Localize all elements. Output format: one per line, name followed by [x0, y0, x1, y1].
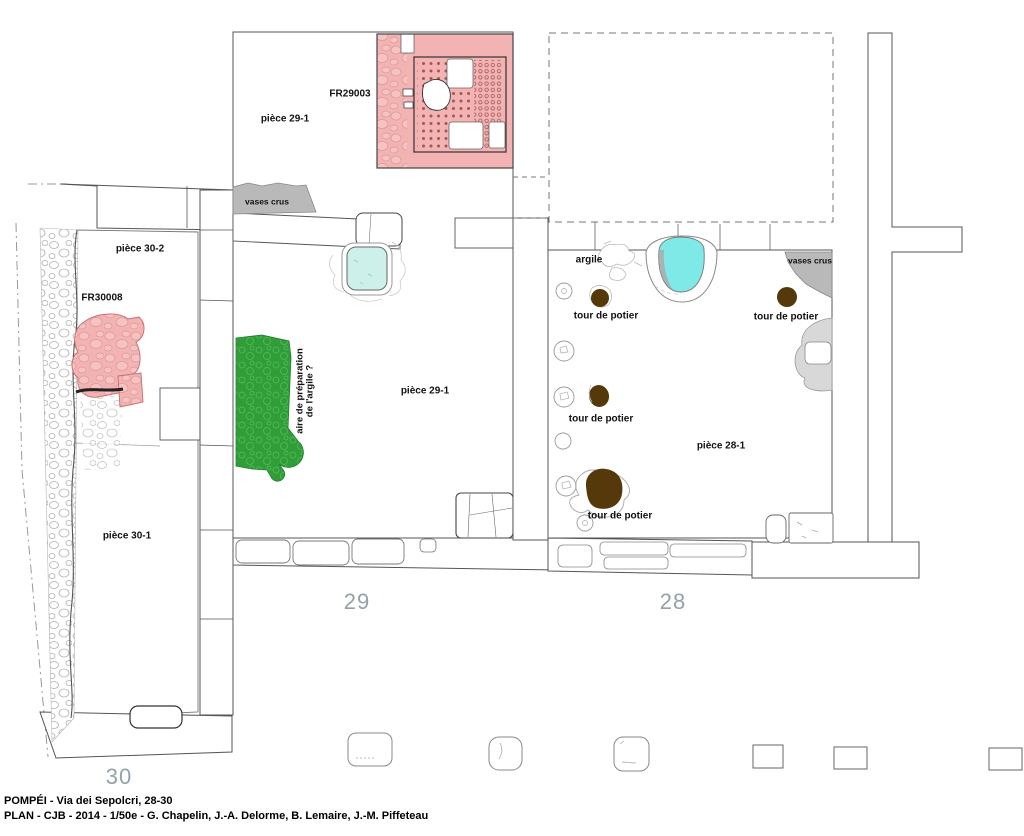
street-number-29: 29	[344, 589, 370, 615]
label-clay-area-line2: de l'argile ?	[306, 348, 316, 434]
street-slab	[834, 747, 867, 769]
label-piece-28-1: pièce 28-1	[697, 441, 745, 452]
street-stone	[348, 733, 392, 766]
street-stones	[348, 733, 1022, 771]
pier-stone	[456, 493, 513, 538]
street-slab	[753, 745, 783, 768]
threshold-stone	[356, 213, 402, 246]
label-piece-30-1: pièce 30-1	[103, 531, 151, 542]
street-stone	[489, 737, 522, 770]
label-clay-area: aire de préparation de l'argile ?	[296, 348, 317, 434]
label-fr29003: FR29003	[329, 89, 370, 100]
bottom-right-wall	[752, 542, 919, 578]
label-tour-de-potier-4: tour de potier	[588, 511, 652, 522]
footer-title-line1: POMPÉI - Via dei Sepolcri, 28-30	[4, 795, 173, 807]
far-right-wall	[868, 33, 962, 542]
footer-title-line2: PLAN - CJB - 2014 - 1/50e - G. Chapelin,…	[4, 810, 428, 822]
pompeii-plan-page: FR29003 pièce 29-1 vases crus pièce 30-2…	[0, 0, 1024, 836]
potter-wheel-4	[586, 469, 622, 509]
street-number-28: 28	[660, 589, 686, 615]
street-stone	[614, 737, 649, 771]
potter-wheel-1	[591, 289, 609, 307]
wall-band-30-29	[200, 190, 233, 715]
label-vases-crus-28: vases crus	[788, 256, 832, 265]
room-28-bottom-wall	[548, 538, 752, 575]
label-vases-crus-29: vases crus	[245, 197, 289, 206]
label-piece-29-1-upper: pièce 29-1	[261, 114, 309, 125]
label-tour-de-potier-2: tour de potier	[754, 312, 818, 323]
plan-drawing	[0, 0, 1024, 836]
floor-stones	[766, 513, 833, 543]
label-fr30008: FR30008	[81, 293, 122, 304]
street-slab	[989, 748, 1022, 770]
room-28	[548, 222, 833, 575]
label-piece-29-1-mid: pièce 29-1	[401, 386, 449, 397]
label-tour-de-potier-3: tour de potier	[569, 414, 633, 425]
kiln-fr30008	[72, 314, 144, 407]
corner-stone	[130, 706, 182, 728]
label-argile: argile	[576, 255, 603, 266]
rubble-patch	[80, 396, 122, 470]
label-piece-30-2: pièce 30-2	[116, 244, 164, 255]
potter-wheel-2	[777, 287, 797, 307]
dashed-unexcavated-area	[549, 33, 833, 222]
kiln-fr29003	[377, 34, 513, 168]
wall-pier	[160, 388, 200, 440]
label-tour-de-potier-1: tour de potier	[574, 311, 638, 322]
street-number-30: 30	[106, 764, 132, 790]
